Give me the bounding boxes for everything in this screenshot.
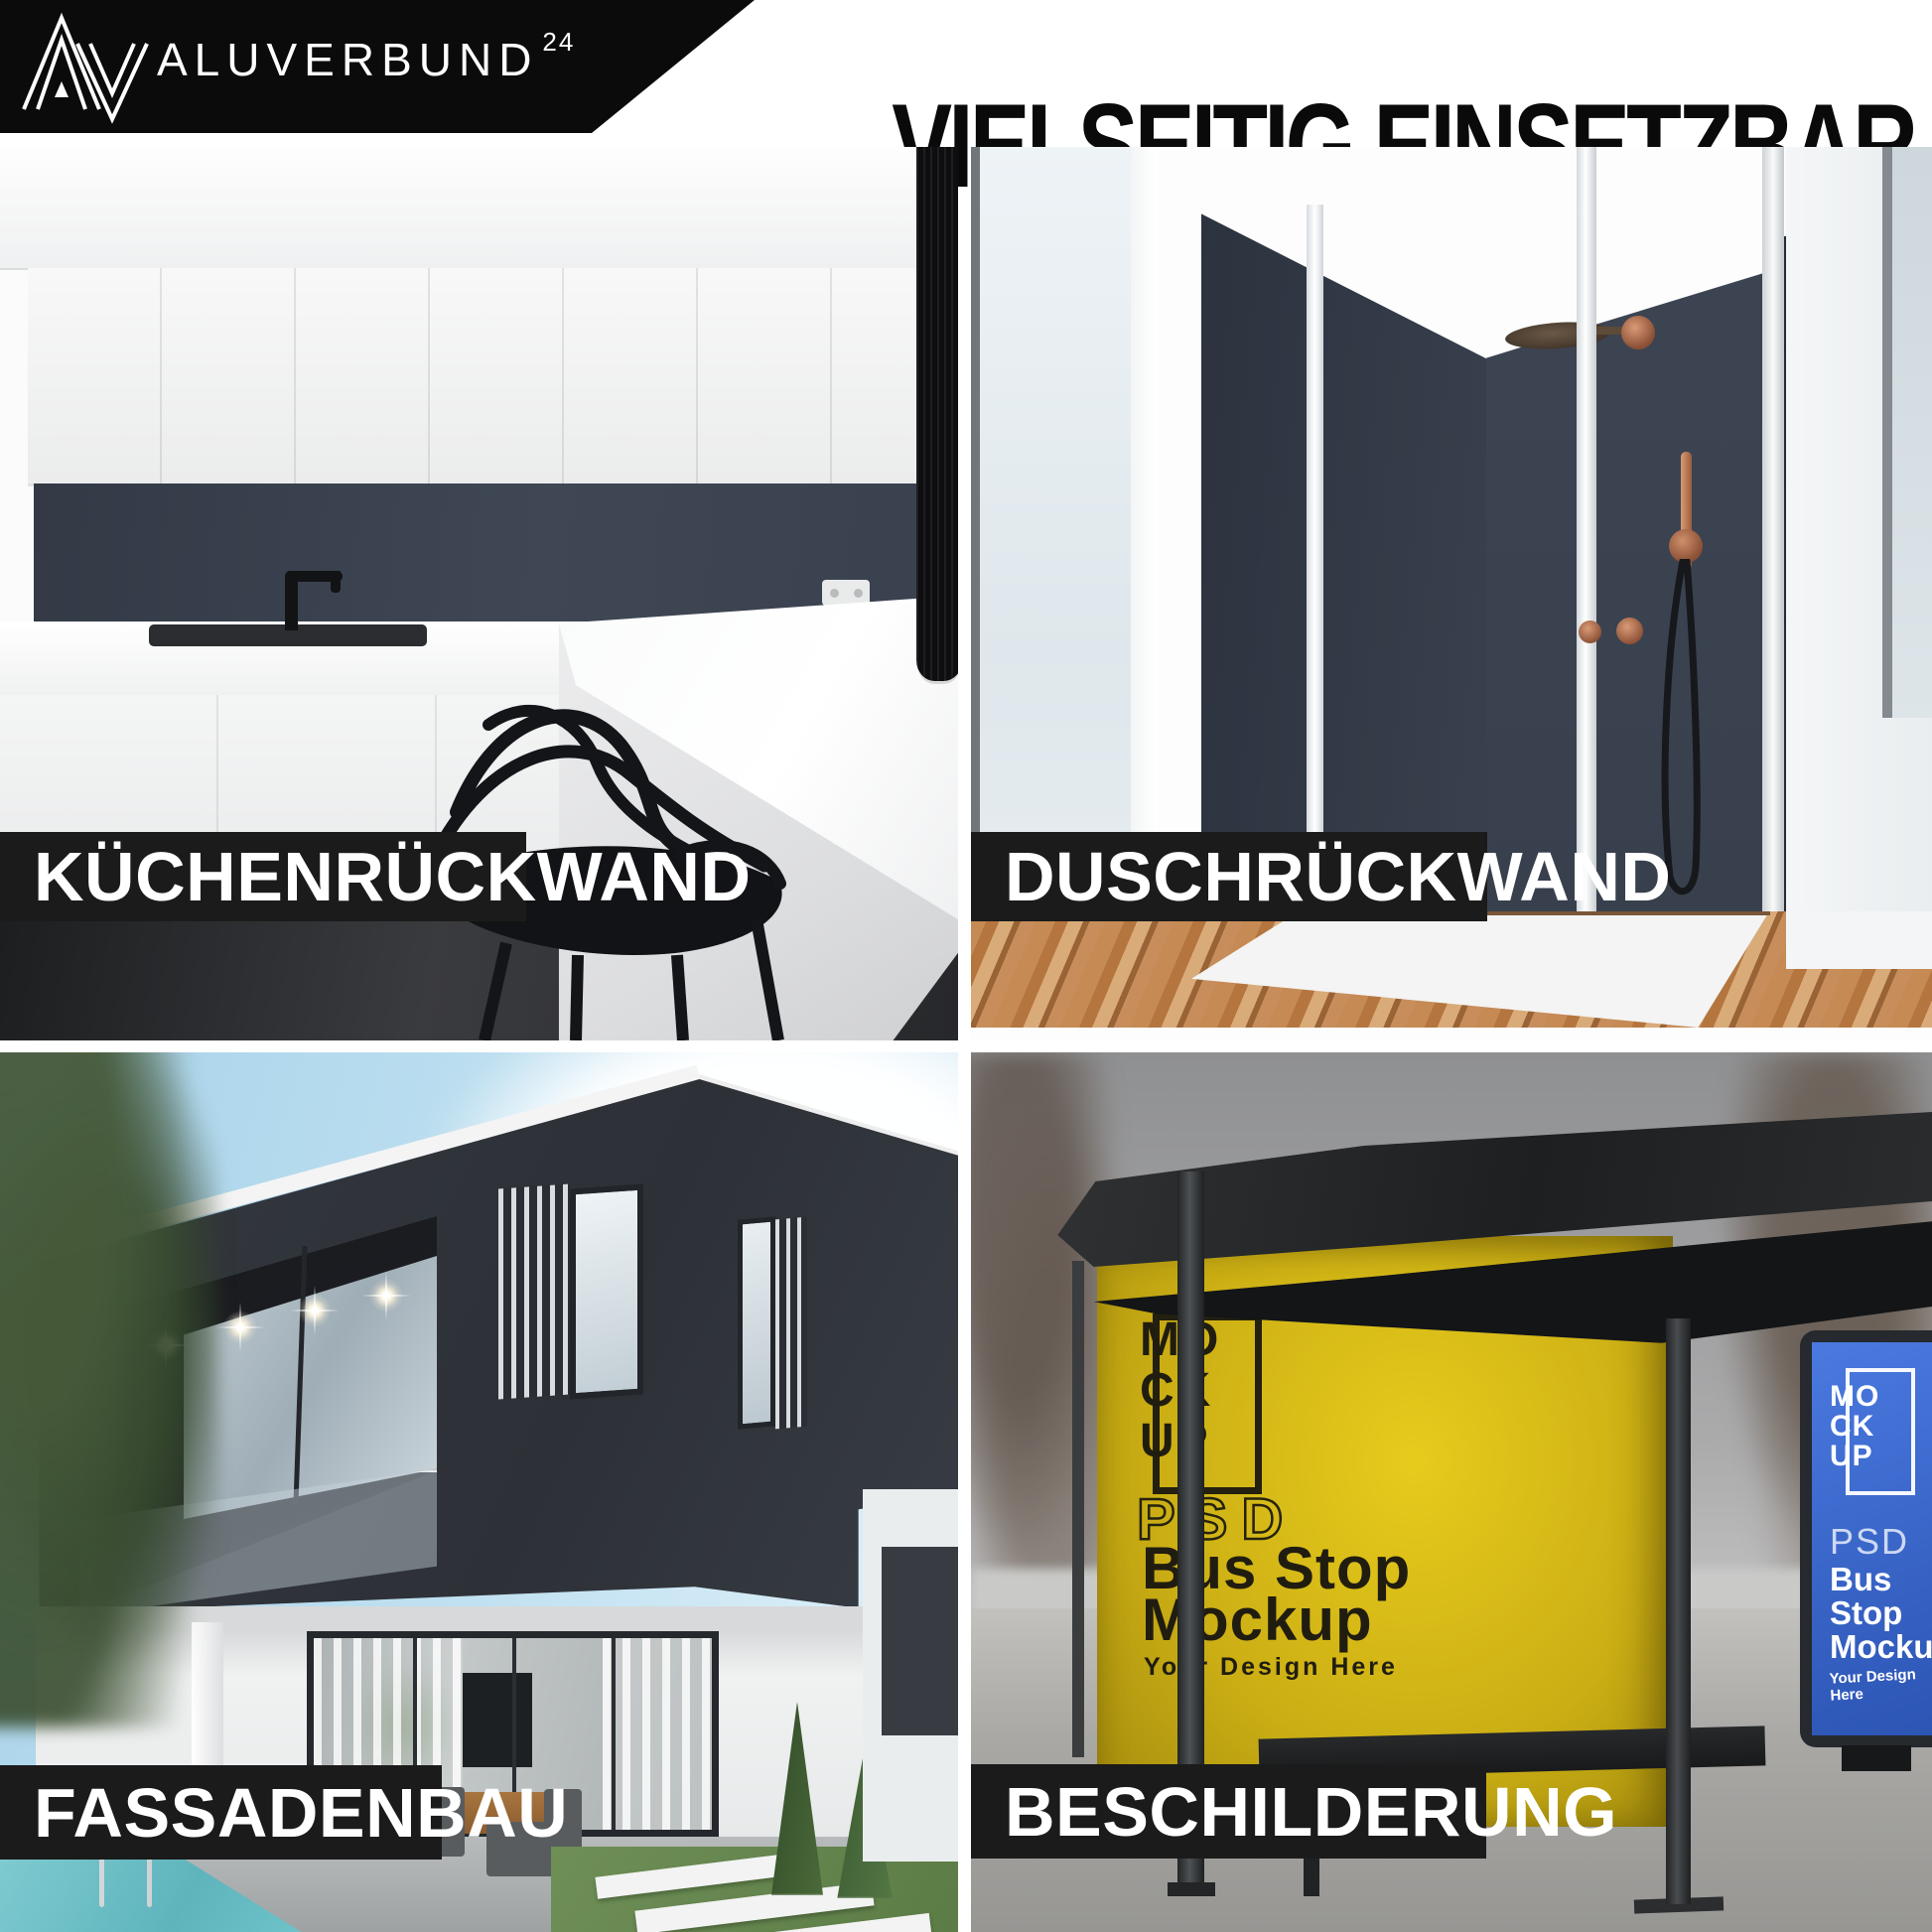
sheer-curtain-right [603, 1638, 712, 1830]
blue-line2: Stop [1830, 1594, 1902, 1632]
shower-left-wall-panel [1201, 207, 1486, 941]
blue-psd-text: PSD [1830, 1521, 1909, 1563]
shower-back-wall-panel [1486, 207, 1770, 931]
tile-kuechenrueckwand: KÜCHENRÜCKWAND [0, 147, 958, 1040]
window-right-glass [1892, 147, 1932, 718]
shelter-post-middle [1666, 1318, 1691, 1904]
downlight-3 [298, 1294, 332, 1327]
copper-valve-knob-2 [1616, 618, 1643, 644]
window-right-frame [1882, 147, 1892, 718]
blue-tagline: Your Design Here [1829, 1665, 1932, 1704]
citylight-display-base [1842, 1745, 1911, 1771]
logo-brand-text: ALUVERBUND [157, 33, 538, 86]
label-fassadenbau: FASSADENBAU [0, 1765, 442, 1860]
pendant-lamp [916, 147, 958, 684]
logo-superscript: 24 [542, 27, 575, 58]
kitchen-ceiling [0, 147, 958, 270]
blue-line1: Bus [1830, 1561, 1891, 1598]
tile-duschrueckwand: DUSCHRÜCKWAND [971, 147, 1932, 1040]
facade-louvers-1 [498, 1183, 570, 1399]
garage-door [882, 1547, 958, 1735]
blue-logo-row-2: CK [1830, 1412, 1879, 1442]
downlight-4 [369, 1279, 403, 1312]
blue-mockup-logo-text: MO CK UP [1830, 1382, 1879, 1471]
shelter-post-foot [1168, 1882, 1215, 1896]
downlight-2 [223, 1311, 257, 1344]
tile-fassadenbau: FASSADENBAU [0, 1052, 958, 1932]
right-wall-base [1786, 911, 1932, 969]
blue-logo-row-3: UP [1830, 1442, 1879, 1471]
aluverbund-av-logo-icon [20, 8, 153, 125]
door-mullion-3 [612, 1638, 616, 1830]
trees-left [0, 1052, 218, 1727]
citylight-display-screen: MO CK UP PSD Bus Stop Mockup Your Design… [1812, 1342, 1932, 1735]
logo-wordmark: ALUVERBUND24 [157, 0, 575, 119]
promo-image: ALUVERBUND24 VIELSEITIG EINSETZBAR K [0, 0, 1932, 1932]
label-beschilderung: BESCHILDERUNG [971, 1764, 1486, 1859]
facade-louvers-2 [775, 1217, 807, 1430]
poster-line2: Mockup [1142, 1586, 1373, 1654]
kitchen-wall-socket [822, 580, 870, 606]
shelter-back-frame [1072, 1261, 1084, 1757]
shower-head-mount [1621, 316, 1655, 349]
facade-window-1 [570, 1183, 643, 1399]
logo-banner: ALUVERBUND24 [0, 0, 764, 133]
tile-beschilderung: MO CK UP PSD Bus Stop Mockup Your Design… [971, 1052, 1932, 1932]
blue-logo-row-1: MO [1830, 1382, 1879, 1412]
glass-frame-right [1762, 147, 1784, 1009]
interior-tv [463, 1673, 532, 1767]
copper-hand-shower-holder [1669, 529, 1703, 563]
label-duschrueckwand: DUSCHRÜCKWAND [971, 832, 1487, 921]
kitchen-faucet-tip [331, 571, 341, 593]
blue-line3: Mockup [1830, 1628, 1932, 1666]
kitchen-backsplash-panel [34, 483, 958, 621]
label-kuechenrueckwand: KÜCHENRÜCKWAND [0, 832, 526, 921]
glass-frame-left [1307, 205, 1323, 939]
kitchen-upper-cabinets [28, 268, 958, 486]
facade-window-2 [738, 1216, 775, 1429]
copper-valve-knob-1 [1579, 621, 1601, 643]
